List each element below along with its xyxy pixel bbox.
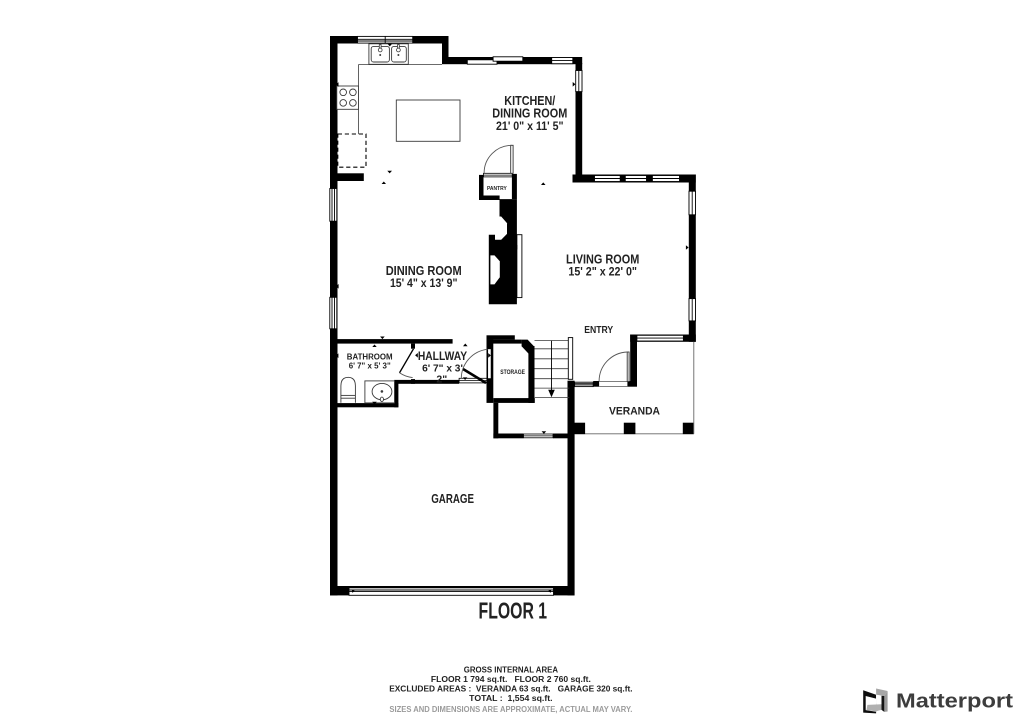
svg-text:DINING ROOM: DINING ROOM bbox=[386, 263, 462, 278]
svg-text:2": 2" bbox=[436, 374, 447, 386]
svg-text:ENTRY: ENTRY bbox=[584, 325, 613, 336]
svg-text:BATHROOM: BATHROOM bbox=[347, 352, 393, 362]
svg-text:FLOOR 1: FLOOR 1 bbox=[479, 598, 548, 624]
svg-text:15' 2" x 22' 0": 15' 2" x 22' 0" bbox=[568, 266, 637, 278]
svg-text:Matterport: Matterport bbox=[896, 691, 1013, 713]
svg-text:STORAGE: STORAGE bbox=[500, 370, 525, 376]
svg-text:TOTAL : 1,554 sq.ft.: TOTAL : 1,554 sq.ft. bbox=[469, 693, 552, 703]
svg-text:21' 0" x 11' 5": 21' 0" x 11' 5" bbox=[496, 121, 564, 133]
svg-text:PANTRY: PANTRY bbox=[487, 186, 507, 192]
svg-text:15' 4" x 13' 9": 15' 4" x 13' 9" bbox=[390, 278, 458, 290]
svg-text:GARAGE: GARAGE bbox=[431, 492, 474, 506]
svg-text:SIZES AND DIMENSIONS ARE APPRO: SIZES AND DIMENSIONS ARE APPROXIMATE, AC… bbox=[389, 704, 632, 714]
svg-text:DINING ROOM: DINING ROOM bbox=[492, 106, 567, 121]
svg-text:EXCLUDED AREAS : VERANDA 63 s: EXCLUDED AREAS : VERANDA 63 sq.ft. GARAG… bbox=[389, 683, 632, 693]
svg-text:VERANDA: VERANDA bbox=[609, 405, 660, 417]
svg-text:GROSS INTERNAL AREA: GROSS INTERNAL AREA bbox=[464, 664, 558, 674]
svg-text:6' 7" x 5' 3": 6' 7" x 5' 3" bbox=[349, 361, 391, 370]
svg-text:HALLWAY: HALLWAY bbox=[418, 351, 468, 363]
svg-text:LIVING ROOM: LIVING ROOM bbox=[566, 251, 639, 266]
